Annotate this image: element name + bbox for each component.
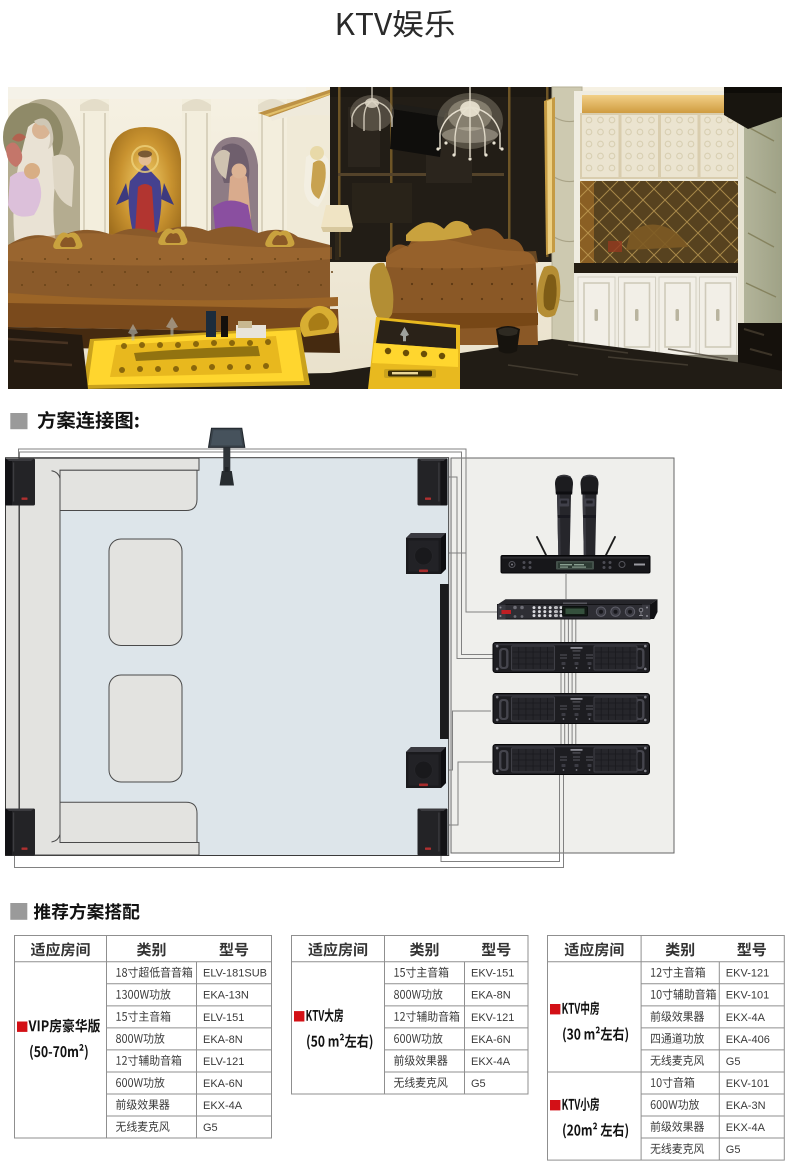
svg-text:G5: G5: [726, 1144, 741, 1156]
svg-text:G5: G5: [203, 1122, 218, 1134]
svg-text:EKV-101: EKV-101: [726, 990, 769, 1002]
svg-text:EKX-4A: EKX-4A: [471, 1056, 511, 1068]
svg-text:ELV-181SUB: ELV-181SUB: [203, 968, 267, 980]
svg-text:EKA-13N: EKA-13N: [203, 990, 249, 1002]
svg-text:EKA-6N: EKA-6N: [203, 1078, 243, 1090]
svg-text:EKV-101: EKV-101: [726, 1078, 769, 1090]
svg-text:EKA-3N: EKA-3N: [726, 1100, 766, 1112]
svg-text:ELV-151: ELV-151: [203, 1012, 244, 1024]
svg-text:EKV-151: EKV-151: [471, 968, 514, 980]
svg-text:EKX-4A: EKX-4A: [726, 1122, 766, 1134]
svg-text:EKX-4A: EKX-4A: [726, 1012, 766, 1024]
svg-text:EKA-8N: EKA-8N: [471, 990, 511, 1002]
svg-text:G5: G5: [726, 1056, 741, 1068]
svg-text:EKA-406: EKA-406: [726, 1034, 770, 1046]
svg-text:EKA-8N: EKA-8N: [203, 1034, 243, 1046]
svg-text:ELV-121: ELV-121: [203, 1056, 244, 1068]
svg-text:G5: G5: [471, 1078, 486, 1090]
svg-text:EKV-121: EKV-121: [471, 1012, 514, 1024]
svg-text:EKX-4A: EKX-4A: [203, 1100, 243, 1112]
svg-text:EKV-121: EKV-121: [726, 968, 769, 980]
svg-text:EKA-6N: EKA-6N: [471, 1034, 511, 1046]
